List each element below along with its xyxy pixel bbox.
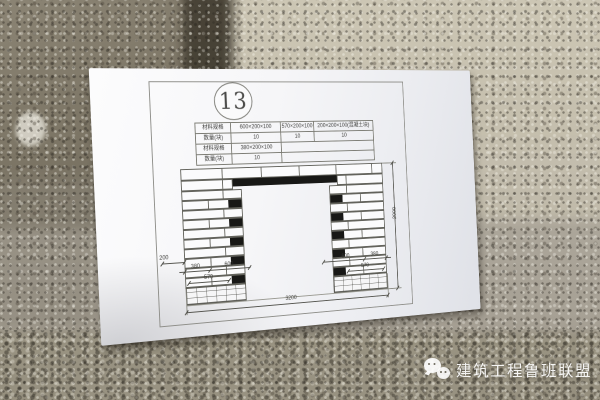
black-block [332,231,344,239]
spec-label: 数量(块) [196,154,232,166]
photo-scene: 13 材料规格 600×200×100 570×200×100 200×200×… [0,0,600,400]
brick-joint [225,248,226,256]
brick-joint [299,166,300,175]
brick-joint [261,168,262,177]
spec-label: 材料规格 [195,123,231,134]
sheet-number: 13 [218,88,248,115]
brick-joint [221,169,222,179]
brick-joint [362,230,363,237]
watermark: 建筑工程鲁班联盟 [424,358,592,381]
spec-cell: 570×200×100 [280,121,314,132]
brick-joint [349,240,350,247]
chat-bubble-small [437,367,450,379]
brick-joint [222,191,223,199]
black-block [229,218,242,226]
black-block [330,195,342,203]
brick-joint [347,204,348,211]
brick-joint [222,180,223,189]
brick-joint [371,164,372,173]
brick-joint [209,220,210,228]
spec-cell: 10 [232,152,282,164]
watermark-text: 建筑工程鲁班联盟 [456,359,592,381]
brick-joint [348,222,349,229]
brick-joint [335,165,336,174]
brick-joint [210,239,211,247]
drawing-sheet-wrap: 13 材料规格 600×200×100 570×200×100 200×200×… [89,68,481,346]
brick-joint [223,210,224,218]
spec-table: 材料规格 600×200×100 570×200×100 200×200×100… [194,120,375,166]
brick-joint [361,212,362,219]
brick-joint [346,186,347,193]
wechat-icon [424,358,451,381]
black-block [230,237,243,245]
black-block [228,199,241,207]
brick-joint [360,194,361,201]
black-block [331,213,343,221]
black-block [334,267,346,275]
black-block [232,275,245,284]
brick-joint [208,201,209,209]
brick-joint [224,229,225,237]
brick-joint [346,176,347,184]
sheet: 13 材料规格 600×200×100 570×200×100 200×200×… [89,68,481,346]
